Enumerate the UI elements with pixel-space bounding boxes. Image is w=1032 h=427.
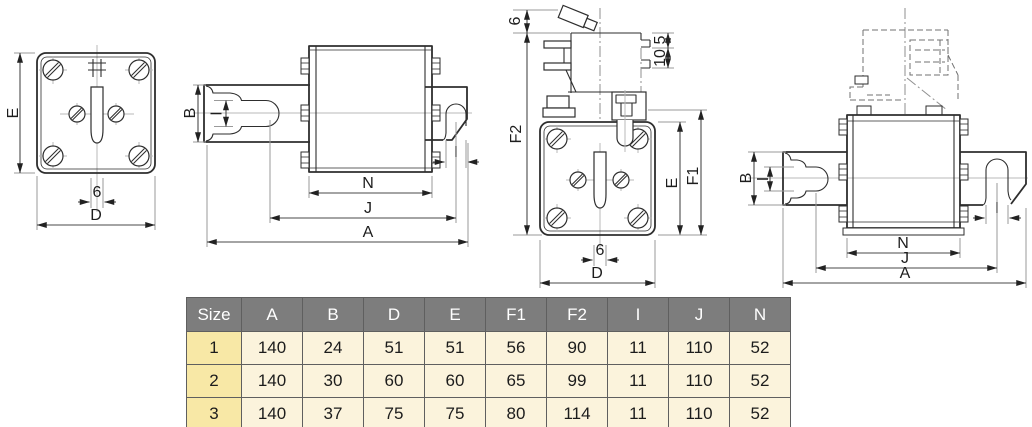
table-row-size-3: 3 140 37 75 75 80 114 11 110 52	[187, 398, 791, 427]
dimension-cell: 30	[303, 365, 364, 398]
column-header-b: B	[303, 298, 364, 332]
front-view-drawing: E 6 D	[5, 45, 155, 230]
dimension-cell: 11	[608, 365, 669, 398]
dimension-cell: 75	[364, 398, 425, 427]
top-view-microswitch-drawing: B I I N J A	[738, 8, 1028, 288]
table-row-size-1: 1 140 24 51 51 56 90 11 110 52	[187, 332, 791, 365]
size-cell: 2	[187, 365, 242, 398]
dim-label-B-switch: B	[738, 173, 755, 184]
dimension-cell: 110	[669, 332, 730, 365]
table-header-row: Size A B D E F1 F2 I J N	[187, 298, 791, 332]
dimension-cell: 65	[486, 365, 547, 398]
fuse-dimension-datasheet: E 6 D B I I	[0, 0, 1032, 427]
dimension-cell: 140	[242, 365, 303, 398]
dim-label-F2-side: F2	[508, 125, 525, 144]
technical-drawing-canvas: E 6 D B I I	[0, 0, 1032, 295]
dim-label-N-top: N	[362, 175, 374, 192]
dimension-cell: 140	[242, 398, 303, 427]
dim-label-J-top: J	[364, 200, 372, 217]
dim-label-I-left-switch: I	[755, 177, 772, 181]
dimension-cell: 114	[547, 398, 608, 427]
dimension-cell: 60	[364, 365, 425, 398]
dimension-cell: 56	[486, 332, 547, 365]
side-view-striker-drawing: 6 F2 5 10 E F1 6 D	[507, 5, 707, 288]
dim-label-striker-side: 6	[507, 16, 524, 25]
dimension-table: Size A B D E F1 F2 I J N 1 140 24 51 51 …	[186, 297, 791, 427]
column-header-f1: F1	[486, 298, 547, 332]
dimension-cell: 11	[608, 398, 669, 427]
column-header-a: A	[242, 298, 303, 332]
size-cell: 3	[187, 398, 242, 427]
dimension-cell: 52	[730, 398, 791, 427]
dim-label-E-front: E	[5, 108, 22, 119]
table-row-size-2: 2 140 30 60 60 65 99 11 110 52	[187, 365, 791, 398]
column-header-d: D	[364, 298, 425, 332]
dimension-cell: 110	[669, 398, 730, 427]
dim-label-A-switch: A	[900, 265, 911, 282]
dim-label-I-left-top: I	[209, 111, 226, 115]
dimension-cell: 52	[730, 332, 791, 365]
size-cell: 1	[187, 332, 242, 365]
dim-label-D-side: D	[591, 265, 603, 282]
column-header-i: I	[608, 298, 669, 332]
dimension-cell: 51	[425, 332, 486, 365]
dimension-cell: 99	[547, 365, 608, 398]
dim-label-A-top: A	[363, 224, 374, 241]
dimension-cell: 11	[608, 332, 669, 365]
dim-label-E-side: E	[664, 178, 681, 189]
top-view-drawing: B I I N J A	[182, 46, 479, 247]
dimension-cell: 75	[425, 398, 486, 427]
column-header-size: Size	[187, 298, 242, 332]
dim-label-step10-side: 10	[652, 49, 669, 67]
dim-label-step5-side: 5	[652, 35, 669, 44]
dimension-cell: 60	[425, 365, 486, 398]
dimension-cell: 24	[303, 332, 364, 365]
dimension-cell: 37	[303, 398, 364, 427]
column-header-j: J	[669, 298, 730, 332]
dimension-cell: 140	[242, 332, 303, 365]
dim-label-slot-front: 6	[93, 184, 102, 201]
column-header-n: N	[730, 298, 791, 332]
dim-label-slot-side: 6	[596, 242, 605, 259]
dimension-cell: 51	[364, 332, 425, 365]
dimension-cell: 110	[669, 365, 730, 398]
dimension-cell: 90	[547, 332, 608, 365]
column-header-f2: F2	[547, 298, 608, 332]
column-header-e: E	[425, 298, 486, 332]
dimension-cell: 52	[730, 365, 791, 398]
dimension-cell: 80	[486, 398, 547, 427]
dim-label-B-top: B	[182, 108, 199, 119]
dim-label-D-front: D	[90, 207, 102, 224]
dim-label-F1-side: F1	[685, 167, 702, 186]
